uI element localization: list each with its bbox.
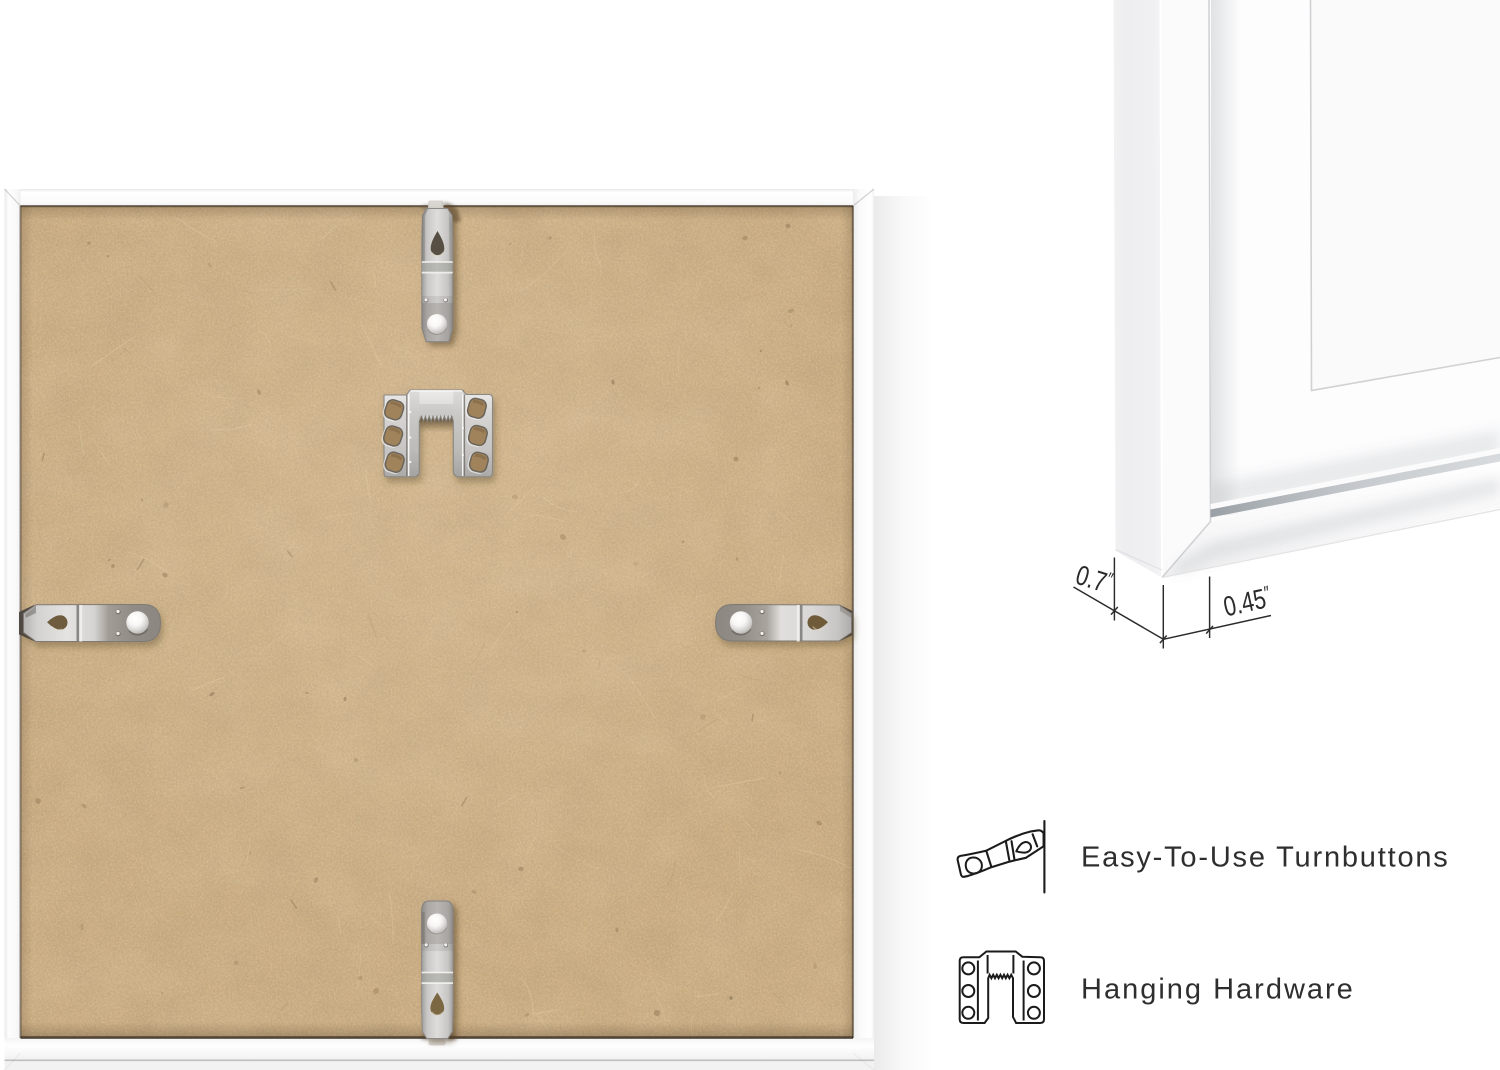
svg-text:Hanging Hardware: Hanging Hardware <box>1081 974 1355 1006</box>
svg-text:Easy-To-Use Turnbuttons: Easy-To-Use Turnbuttons <box>1081 842 1450 874</box>
